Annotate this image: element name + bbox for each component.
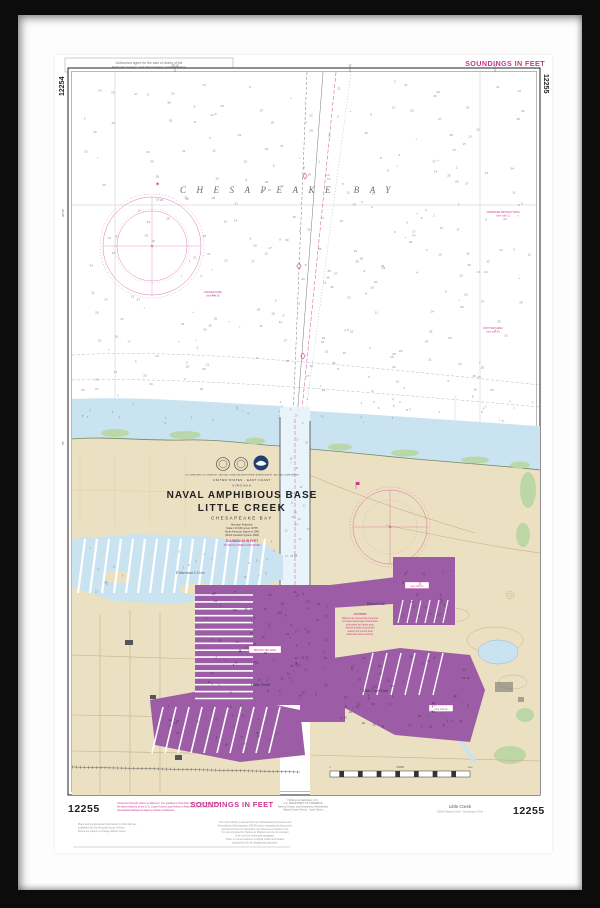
sounding: 28 [265, 147, 269, 151]
sounding: 11 [347, 191, 350, 195]
scale-tick-2: 1000 [468, 767, 474, 769]
sounding: 32 [350, 330, 354, 334]
sounding: 11 [291, 501, 294, 505]
chart-svg: Authorized agent for the sale of charts … [55, 55, 552, 853]
sounding: 37 [432, 159, 436, 163]
sounding: 13 [146, 150, 150, 154]
sounding: 22 [362, 721, 365, 725]
sounding: 5 [521, 202, 523, 206]
edition-line: U.S. DEPARTMENT OF COMMERCE [284, 802, 323, 805]
sounding: 32 [261, 189, 265, 193]
sounding: 11 [259, 324, 262, 328]
sounding: 10 [176, 719, 179, 723]
sounding: 20 [353, 202, 357, 206]
sounding: + [437, 158, 439, 162]
sounding: 19 [473, 387, 477, 391]
sounding: 14 [391, 684, 394, 688]
sounding: 11 [402, 581, 405, 585]
sounding: 13 [499, 248, 503, 252]
sounding: 13 [485, 171, 489, 175]
caution-line: Mariners are warned that numerous [342, 617, 379, 620]
sounding: + [323, 415, 325, 419]
sounding: 16 [390, 355, 394, 359]
sounding: 6 [406, 221, 408, 225]
sounding: 20 [497, 320, 501, 324]
sounding: 13 [468, 134, 472, 138]
sounding: 5 [337, 114, 339, 118]
sounding: 21 [404, 83, 408, 87]
scale-segment [377, 771, 382, 777]
sounding: 14 [296, 594, 299, 598]
sounding: 26 [436, 90, 440, 94]
sounding: 27 [438, 117, 442, 121]
sounding: 27 [334, 271, 338, 275]
sounding: 27 [440, 226, 444, 230]
scale-segment [339, 771, 344, 777]
sounding: 12 [299, 485, 302, 489]
sounding: 16 [254, 660, 257, 664]
sounding: 22 [224, 258, 228, 262]
sounding: 37 [95, 387, 99, 391]
sounding: 18 [294, 511, 297, 515]
sounding: 4 [344, 329, 346, 333]
sounding: 34 [510, 167, 514, 171]
sounding: 6 [361, 200, 363, 204]
sounding: 21 [212, 592, 215, 596]
sounding: 5 [458, 202, 460, 206]
sounding: 9 [256, 356, 258, 360]
sounding: 21 [295, 656, 298, 660]
sounding: 37 [465, 181, 469, 185]
sounding: 10 [244, 575, 247, 579]
sounding: 35 [308, 173, 312, 177]
sounding: 33 [95, 378, 99, 382]
scale-segment [395, 771, 400, 777]
sounding: 8 [364, 269, 366, 273]
sounding: 13 [344, 715, 347, 719]
sounding: 36 [167, 100, 171, 104]
sounding: 11 [286, 632, 289, 636]
sounding: 30 [410, 109, 414, 113]
sounding: 36 [327, 269, 331, 273]
sounding: 20 [294, 590, 297, 594]
region-line: UNITED STATES - EAST COAST [213, 478, 271, 482]
sounding: 18 [264, 651, 267, 655]
sounding: 21 [206, 363, 210, 367]
sounding: 8 [299, 229, 301, 233]
sounding: 10 [429, 724, 432, 728]
sounding: 32 [392, 365, 396, 369]
sounding: 33 [490, 388, 494, 392]
sounding: 15 [292, 215, 296, 219]
sounding: 35 [203, 234, 207, 238]
sounding: 2 [200, 274, 202, 278]
sounding: 22 [253, 244, 257, 248]
sounding: 13 [317, 602, 320, 606]
sounding: + [415, 137, 417, 141]
sounding: 20 [234, 661, 237, 665]
sounding: 12 [264, 251, 268, 255]
sounding: 4 [416, 271, 418, 275]
sounding: 13 [320, 216, 324, 220]
sounding: 22 [244, 160, 248, 164]
sounding: 20 [374, 280, 378, 284]
caution-title: CAUTION [354, 612, 367, 616]
sounding: 4 [403, 386, 405, 390]
agency-line: U.S. DEPARTMENT OF COMMERCE · NATIONAL O… [185, 474, 300, 477]
sounding: 5 [368, 375, 370, 379]
sounding: + [143, 306, 145, 310]
sounding: 15 [305, 441, 308, 445]
sounding: 2 [495, 328, 497, 332]
sounding: 29 [200, 387, 204, 391]
sounding: 27 [251, 260, 255, 264]
sounding: 31 [279, 320, 283, 324]
sounding: 8 [380, 156, 382, 160]
sounding: 10 [358, 678, 361, 682]
sounding: 14 [294, 662, 297, 666]
sounding: 14 [434, 170, 438, 174]
sounding: 35 [466, 106, 470, 110]
left-note-line: Prices are subject to change without not… [78, 830, 127, 833]
sounding: 21 [371, 686, 374, 690]
sounding: + [211, 268, 213, 272]
sounding: 36 [326, 276, 330, 280]
scale-segment [433, 771, 438, 777]
sounding: 25 [212, 196, 216, 200]
sounding: 3 [298, 301, 300, 305]
sounding: 10 [93, 130, 97, 134]
chart-number-bottom-right: 12255 [513, 805, 545, 817]
sounding: 29 [399, 349, 403, 353]
sounding: 6 [283, 313, 285, 317]
sounding: 37 [108, 236, 112, 240]
sounding: 17 [412, 229, 416, 233]
sounding: 26 [447, 173, 451, 177]
caution-line: unmarked submerged obstructions [342, 620, 378, 623]
sounding: 30 [285, 238, 289, 242]
sounding: 10 [328, 133, 332, 137]
sounding: 5 [186, 360, 188, 364]
sounding: 9 [135, 360, 137, 364]
sounding: 21 [235, 202, 239, 206]
sounding: 5 [249, 85, 251, 89]
sounding: 12 [430, 709, 433, 713]
sounding: + [97, 156, 99, 160]
sounding: 15 [343, 351, 347, 355]
sounding: 21 [250, 607, 253, 611]
sounding: 21 [306, 656, 309, 660]
sounding: + [349, 109, 351, 113]
sounding: 16 [280, 184, 284, 188]
sounding: 15 [307, 600, 310, 604]
sounding: 15 [207, 680, 210, 684]
sounding: 11 [528, 252, 531, 256]
sounding: 12 [324, 638, 327, 642]
sounding: 25 [202, 367, 206, 371]
sounding: 13 [202, 83, 206, 87]
sounding: 33 [265, 180, 269, 184]
caution-line: exist within the harbor area. [346, 623, 375, 626]
sounding: + [518, 276, 520, 280]
sounding: 13 [169, 718, 172, 722]
sounding: 28 [455, 180, 459, 184]
sounding: 12 [387, 679, 390, 683]
sounding: 15 [324, 656, 327, 660]
sounding: 11 [256, 559, 259, 563]
sounding: 11 [416, 593, 419, 597]
little-creek-cove-label: Little Creek Cove [362, 689, 389, 693]
sounding: 8 [138, 208, 140, 212]
scale-segment [451, 771, 456, 777]
sounding: 15 [378, 664, 381, 668]
edition-line: Published at Washington, D.C. [287, 799, 319, 802]
sounding: 22 [186, 364, 190, 368]
sounding: 2 [456, 166, 458, 170]
sounding: 14 [98, 89, 102, 93]
graticule-top-2: 10' [493, 64, 497, 68]
sounding: 27 [340, 219, 344, 223]
note-right-mid-2: (see note E) [486, 330, 499, 333]
sounding: + [290, 96, 292, 100]
sounding: 3 [197, 345, 199, 349]
sounding: 37 [284, 339, 288, 343]
sounding: 15 [251, 619, 254, 623]
sounding: 24 [354, 249, 358, 253]
sounding: 7 [228, 320, 230, 324]
sounding: 13 [462, 676, 465, 680]
sounding: 21 [363, 656, 366, 660]
caution-line: caution and consult local [347, 630, 373, 633]
sounding: 30 [203, 328, 207, 332]
sounding: 34 [89, 263, 93, 267]
sounding: 9 [194, 105, 196, 109]
sounding: 15 [211, 671, 214, 675]
sounding: 10 [295, 413, 298, 417]
sounding: 6 [246, 178, 248, 182]
sounding: 11 [422, 571, 425, 575]
sounding: 20 [448, 336, 452, 340]
sounding: + [299, 156, 301, 160]
sounding: 37 [280, 144, 284, 148]
sounding: 13 [477, 270, 481, 274]
scale-bar-unit: YARDS [396, 766, 404, 769]
sounding: 23 [347, 296, 351, 300]
sounding: 9 [421, 216, 423, 220]
sounding: 17 [264, 607, 267, 611]
sounding: 27 [134, 92, 138, 96]
sounding: + [405, 235, 407, 239]
sounding: 11 [91, 291, 94, 295]
sounding: 31 [504, 333, 508, 337]
sounding: 8 [147, 93, 149, 97]
sounding: 5 [342, 182, 344, 186]
graticule-left-0: 36°56' [61, 209, 65, 217]
sounding: 14 [349, 710, 352, 714]
sounding: 33 [169, 119, 173, 123]
flag-icon [356, 482, 360, 485]
sounding: 19 [279, 610, 282, 614]
sounding: 12 [418, 714, 421, 718]
sounding: 35 [355, 259, 359, 263]
sounding: 28 [450, 133, 454, 137]
sounding: 13 [250, 631, 253, 635]
sounding: 12 [458, 362, 462, 366]
sounding: 35 [208, 324, 212, 328]
sounding: 17 [456, 227, 460, 231]
sounding: 29 [360, 257, 364, 261]
sounding: 17 [127, 339, 131, 343]
sounding: 8 [347, 328, 349, 332]
sounding: 30 [330, 285, 334, 289]
graticule-top-0: 76°12' [171, 64, 179, 68]
sounding: 7 [396, 165, 398, 169]
sounding: 22 [98, 338, 102, 342]
sounding: + [108, 347, 110, 351]
sounding: 21 [303, 504, 306, 508]
sounding: + [458, 298, 460, 302]
sounding: 17 [295, 630, 298, 634]
sounding: 3 [426, 248, 428, 252]
sounding: 13 [268, 593, 271, 597]
sounding: 17 [421, 662, 424, 666]
sounding: 17 [325, 615, 328, 619]
sounding: 6 [387, 169, 389, 173]
star-icon: ✶ [155, 181, 160, 188]
sounding: 8 [279, 237, 281, 241]
sounding: 23 [325, 350, 329, 354]
soundings-bottom-label: SOUNDINGS IN FEET [190, 800, 273, 809]
sounding: 17 [299, 537, 302, 541]
sounding: 23 [463, 667, 466, 671]
sounding: 17 [229, 690, 232, 694]
sounding: 22 [337, 87, 341, 91]
sounding: 6 [337, 367, 339, 371]
sounding: 19 [238, 649, 241, 653]
sounding: 11 [287, 672, 290, 676]
sounding: 21 [496, 85, 500, 89]
sounding: 23 [344, 695, 347, 699]
restricted-box-2: (see note F) [411, 585, 424, 588]
sounding: 3 [371, 205, 373, 209]
sounding: 15 [301, 656, 304, 660]
sounding: 17 [268, 246, 272, 250]
sounding: 14 [459, 719, 462, 723]
sounding: 33 [301, 277, 305, 281]
sounding: 27 [260, 109, 264, 113]
adjoining-chart-right: 12255 [542, 74, 549, 94]
sounding: 33 [81, 388, 85, 392]
sounding: 18 [410, 655, 413, 659]
sounding: 23 [84, 149, 88, 153]
sounding: 35 [318, 247, 322, 251]
sounding: 7 [320, 384, 322, 388]
sounding: 29 [519, 300, 523, 304]
sounding: 14 [292, 491, 295, 495]
sounding: 26 [271, 120, 275, 124]
sounding: 37 [453, 148, 457, 152]
sounding: 37 [115, 235, 119, 239]
sounding: 28 [309, 129, 313, 133]
edition-line: National Ocean Service · Coast Survey [283, 809, 324, 812]
sounding: 10 [372, 191, 376, 195]
sounding: 10 [176, 731, 179, 735]
sounding: 29 [425, 340, 429, 344]
sounding: 9 [485, 218, 487, 222]
sounding: 20 [302, 690, 305, 694]
sounding: 24 [291, 515, 294, 519]
sounding: 8 [194, 120, 196, 124]
sounding: 6 [399, 153, 401, 157]
sounding: 33 [477, 375, 481, 379]
sounding: 32 [486, 259, 490, 263]
sounding: 20 [481, 366, 485, 370]
sounding: 6 [305, 263, 307, 267]
state-line: VIRGINIA [232, 484, 252, 488]
sounding: 10 [225, 743, 228, 747]
fishermans-cove-label: Fisherman's Cove [175, 570, 205, 575]
sounding: 4 [305, 120, 307, 124]
sounding: 13 [379, 672, 382, 676]
sounding: 1 [319, 159, 321, 163]
sounding: 10 [256, 731, 259, 735]
sounding: 33 [467, 263, 471, 267]
sounding: 15 [410, 600, 413, 604]
sounding: 12 [212, 148, 216, 152]
sounding: 12 [518, 89, 522, 93]
sounding: + [239, 325, 241, 329]
sounding: 8 [372, 389, 374, 393]
sounding: 10 [281, 602, 284, 606]
chart-paper: Authorized agent for the sale of charts … [55, 55, 552, 853]
sounding: 14 [234, 218, 238, 222]
sounding: 32 [286, 359, 290, 363]
sounding: + [195, 338, 197, 342]
sounding: 14 [316, 618, 319, 622]
sounding: 4 [369, 346, 371, 350]
sounding: + [416, 211, 418, 215]
caution-line: Vessels should proceed with [346, 627, 376, 630]
sounding: 19 [382, 266, 386, 270]
sounding: 12 [438, 613, 441, 617]
soundings-title-2: AT MEAN LOWER LOW WATER [224, 544, 261, 547]
sounding: 19 [244, 606, 247, 610]
sounding: 14 [211, 293, 215, 297]
sounding: 18 [253, 642, 256, 646]
sounding: 23 [322, 388, 326, 392]
sounding: 17 [285, 554, 288, 558]
sounding: 27 [306, 374, 310, 378]
sounding: 2 [184, 377, 186, 381]
sounding: 13 [294, 553, 297, 557]
sounding: 12 [268, 623, 271, 627]
sounding: 25 [214, 316, 218, 320]
sounding: 11 [467, 704, 470, 708]
sounding: 16 [323, 280, 327, 284]
sounding: 22 [503, 217, 507, 221]
sounding: 15 [467, 676, 470, 680]
sounding: 35 [156, 175, 160, 179]
sounding: 31 [182, 149, 186, 153]
sounding: 26 [290, 456, 293, 460]
sounding: 33 [143, 373, 147, 377]
sounding: 28 [95, 310, 99, 314]
print-caption-sub: NOAA Nautical Chart · Soundings in Feet [437, 811, 483, 814]
restricted-box-1: (see note A) [435, 708, 448, 711]
sounding: 14 [299, 694, 302, 698]
sounding: 36 [307, 228, 311, 232]
sounding: 13 [112, 251, 116, 255]
